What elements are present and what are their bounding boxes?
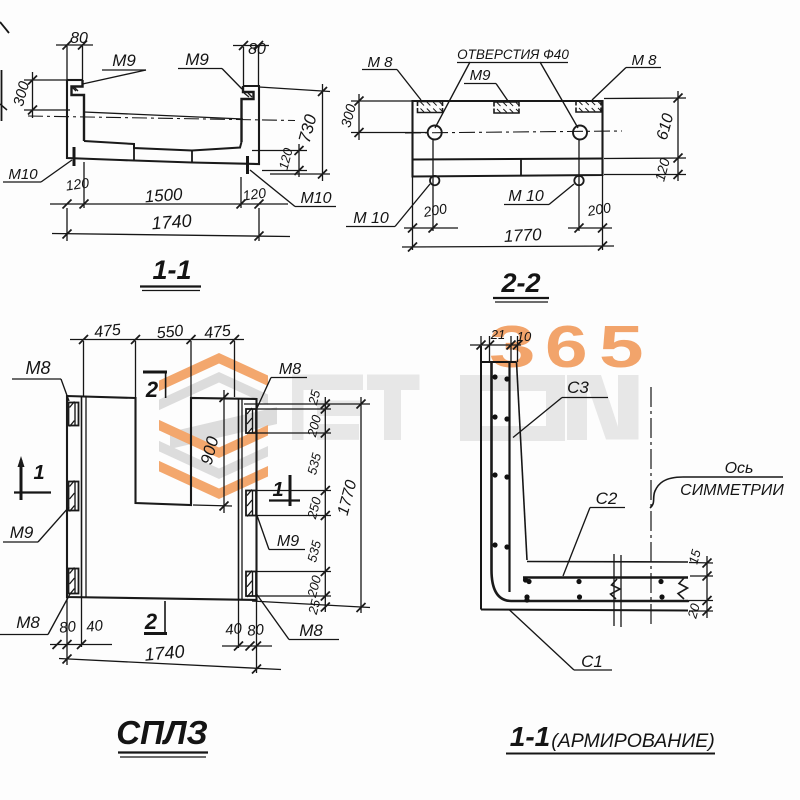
svg-text:1500: 1500 [144,185,184,207]
svg-text:80: 80 [70,30,88,47]
svg-text:С1: С1 [581,652,603,671]
svg-text:М9: М9 [112,51,136,70]
svg-text:М 10: М 10 [353,210,389,227]
svg-text:21: 21 [490,327,505,342]
svg-text:М 8: М 8 [631,52,657,69]
svg-text:2: 2 [144,609,158,634]
svg-text:475: 475 [93,322,121,342]
svg-text:2-2: 2-2 [500,268,540,298]
svg-text:1740: 1740 [151,211,192,234]
svg-text:(АРМИРОВАНИЕ): (АРМИРОВАНИЕ) [551,730,715,752]
svg-text:М8: М8 [16,613,40,632]
svg-text:М9: М9 [470,67,491,84]
svg-text:2: 2 [145,377,159,402]
svg-text:120: 120 [242,184,268,203]
svg-text:СИММЕТРИИ: СИММЕТРИИ [680,482,784,499]
svg-text:М9: М9 [185,50,209,69]
svg-text:С3: С3 [567,378,589,397]
svg-text:80: 80 [58,618,77,637]
svg-text:С2: С2 [596,489,618,508]
svg-text:1740: 1740 [144,641,186,664]
svg-text:1: 1 [272,479,283,501]
svg-text:10: 10 [517,329,532,344]
svg-text:120: 120 [65,174,91,193]
svg-text:М8: М8 [299,621,323,640]
svg-text:М 8: М 8 [367,54,393,71]
svg-text:СПЛЗ: СПЛЗ [116,714,207,751]
svg-text:Ось: Ось [725,460,754,477]
svg-text:1-1: 1-1 [510,721,550,752]
svg-text:М10: М10 [8,166,38,183]
svg-text:1: 1 [33,462,44,484]
svg-text:6: 6 [545,314,588,380]
svg-text:ОТВЕРСТИЯ Ф40: ОТВЕРСТИЯ Ф40 [457,47,569,62]
svg-text:М8: М8 [25,358,50,378]
svg-text:М9: М9 [277,533,299,550]
svg-text:М10: М10 [300,190,331,207]
svg-text:М 10: М 10 [508,188,544,205]
svg-text:3: 3 [489,314,536,380]
svg-text:80: 80 [246,621,265,640]
svg-text:1770: 1770 [503,225,542,246]
svg-text:М9: М9 [10,523,34,542]
svg-text:М8: М8 [279,361,301,378]
svg-text:40: 40 [85,617,104,636]
svg-text:475: 475 [203,323,231,343]
svg-text:550: 550 [156,323,184,343]
svg-text:80: 80 [248,41,266,58]
svg-text:40: 40 [224,620,243,639]
svg-text:1-1: 1-1 [152,255,191,285]
svg-text:5: 5 [599,313,644,379]
